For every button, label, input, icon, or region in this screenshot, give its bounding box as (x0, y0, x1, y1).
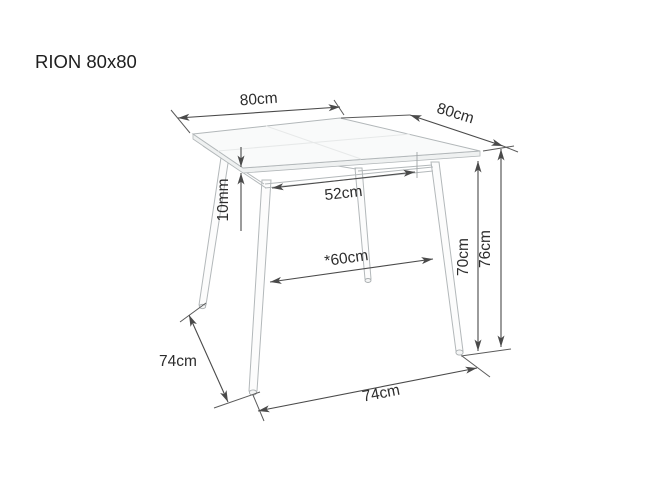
dim-base-side-label: 74cm (159, 353, 197, 370)
dim-clearance-depth-label: *60cm (323, 247, 369, 270)
back-right-foot (365, 279, 371, 283)
front-right-foot (456, 350, 463, 355)
page-title: RION 80x80 (35, 51, 137, 72)
dim-clearance-width-label: 52cm (324, 183, 364, 204)
dim-underside-height-label: 70cm (455, 238, 472, 276)
dim-base-side: 74cm (159, 303, 260, 408)
table-dimension-diagram: RION 80x80 (0, 0, 648, 486)
dim-thickness-label: 10mm (215, 178, 232, 221)
tabletop-surface (193, 118, 480, 168)
dim-clearance-depth: *60cm (270, 247, 433, 282)
dim-total-height-label: 76cm (477, 230, 494, 268)
dim-base-front-label: 74cm (361, 382, 401, 406)
dim-base-front: 74cm (253, 356, 490, 421)
dim-top-depth-label: 80cm (435, 100, 476, 127)
back-left-leg (199, 144, 231, 305)
product-dimension-sheet: RION 80x80 (0, 0, 648, 486)
dim-top-width-label: 80cm (239, 90, 278, 110)
dim-heights: 70cm 76cm (455, 146, 514, 356)
front-left-leg (249, 180, 271, 391)
